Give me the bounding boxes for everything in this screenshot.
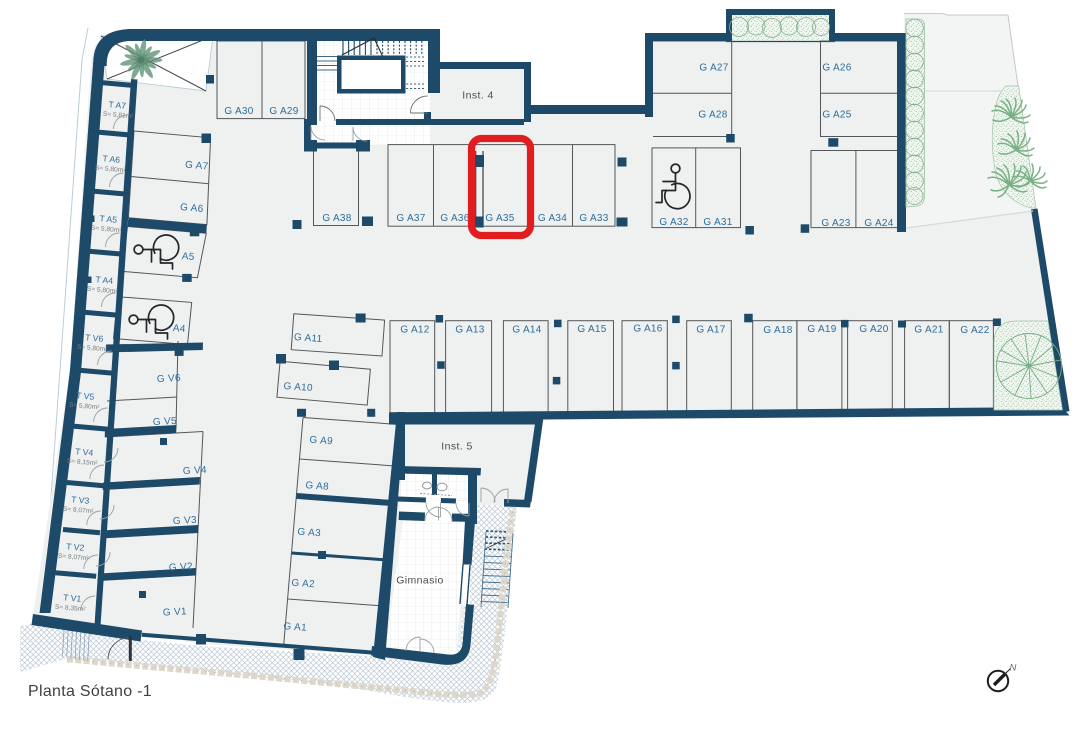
svg-text:Inst. 4: Inst. 4	[462, 90, 493, 102]
svg-text:G A13: G A13	[455, 325, 484, 336]
svg-text:G A28: G A28	[698, 110, 727, 121]
svg-text:T V3: T V3	[71, 494, 90, 506]
svg-text:T A4: T A4	[95, 274, 114, 286]
svg-text:G V6: G V6	[157, 373, 182, 385]
svg-text:G A36: G A36	[440, 213, 469, 224]
svg-text:G A14: G A14	[512, 325, 541, 336]
svg-text:T A7: T A7	[108, 99, 127, 111]
svg-text:G A26: G A26	[822, 63, 851, 74]
svg-text:Gimnasio: Gimnasio	[396, 575, 444, 587]
svg-text:G A25: G A25	[822, 110, 851, 121]
svg-text:T V4: T V4	[75, 446, 94, 458]
svg-text:G A20: G A20	[859, 324, 888, 335]
svg-text:A4: A4	[172, 323, 186, 335]
svg-text:G A19: G A19	[807, 324, 836, 335]
svg-text:G A17: G A17	[696, 325, 725, 336]
svg-text:G V4: G V4	[183, 465, 208, 477]
svg-text:G A38: G A38	[322, 213, 351, 224]
svg-text:G A34: G A34	[538, 213, 567, 224]
svg-text:G A35: G A35	[485, 213, 514, 224]
svg-text:G A29: G A29	[269, 106, 298, 117]
svg-text:G A22: G A22	[960, 325, 989, 336]
svg-text:G A27: G A27	[699, 63, 728, 74]
svg-text:G A12: G A12	[400, 325, 429, 336]
svg-text:T V6: T V6	[85, 332, 104, 344]
svg-text:T V1: T V1	[63, 592, 82, 604]
svg-text:G A23: G A23	[821, 218, 850, 229]
svg-text:T V5: T V5	[76, 390, 95, 402]
svg-text:G V1: G V1	[163, 606, 188, 618]
svg-text:G A37: G A37	[396, 213, 425, 224]
svg-text:G A7: G A7	[185, 160, 209, 173]
svg-text:G A11: G A11	[294, 332, 323, 345]
svg-text:G A24: G A24	[864, 218, 893, 229]
svg-text:G A8: G A8	[305, 480, 329, 493]
svg-text:G A15: G A15	[577, 324, 606, 335]
svg-text:N: N	[1010, 663, 1017, 674]
svg-text:G A32: G A32	[659, 217, 688, 228]
svg-text:T A6: T A6	[102, 153, 121, 165]
svg-text:G V2: G V2	[169, 561, 194, 573]
svg-text:G V3: G V3	[173, 515, 198, 527]
svg-text:G V5: G V5	[153, 416, 178, 428]
svg-text:T A5: T A5	[99, 213, 118, 225]
svg-text:G A21: G A21	[914, 325, 943, 336]
svg-text:G A3: G A3	[297, 527, 321, 540]
svg-text:G A10: G A10	[283, 381, 313, 394]
svg-text:G A30: G A30	[224, 106, 253, 117]
svg-text:A5: A5	[181, 251, 195, 263]
svg-text:Planta Sótano -1: Planta Sótano -1	[28, 683, 152, 700]
svg-text:G A16: G A16	[633, 324, 662, 335]
svg-text:G A6: G A6	[180, 202, 204, 215]
svg-text:T V2: T V2	[66, 541, 85, 553]
svg-text:G A31: G A31	[703, 217, 732, 228]
svg-text:G A18: G A18	[763, 325, 792, 336]
svg-text:Inst. 5: Inst. 5	[441, 441, 472, 453]
svg-text:G A1: G A1	[283, 621, 307, 634]
svg-text:G A2: G A2	[291, 578, 315, 591]
svg-text:G A33: G A33	[579, 213, 608, 224]
svg-text:G A9: G A9	[309, 435, 333, 448]
